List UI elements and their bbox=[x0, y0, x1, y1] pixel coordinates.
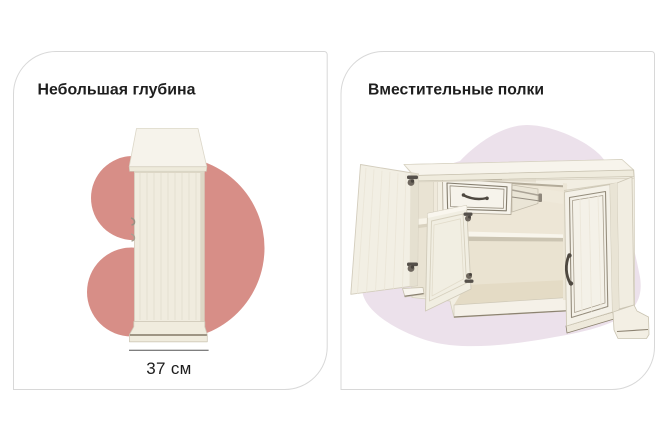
svg-text:37 см: 37 см bbox=[146, 359, 191, 378]
svg-text:Вместительные полки: Вместительные полки bbox=[368, 82, 544, 99]
svg-text:Небольшая глубина: Небольшая глубина bbox=[38, 82, 196, 99]
